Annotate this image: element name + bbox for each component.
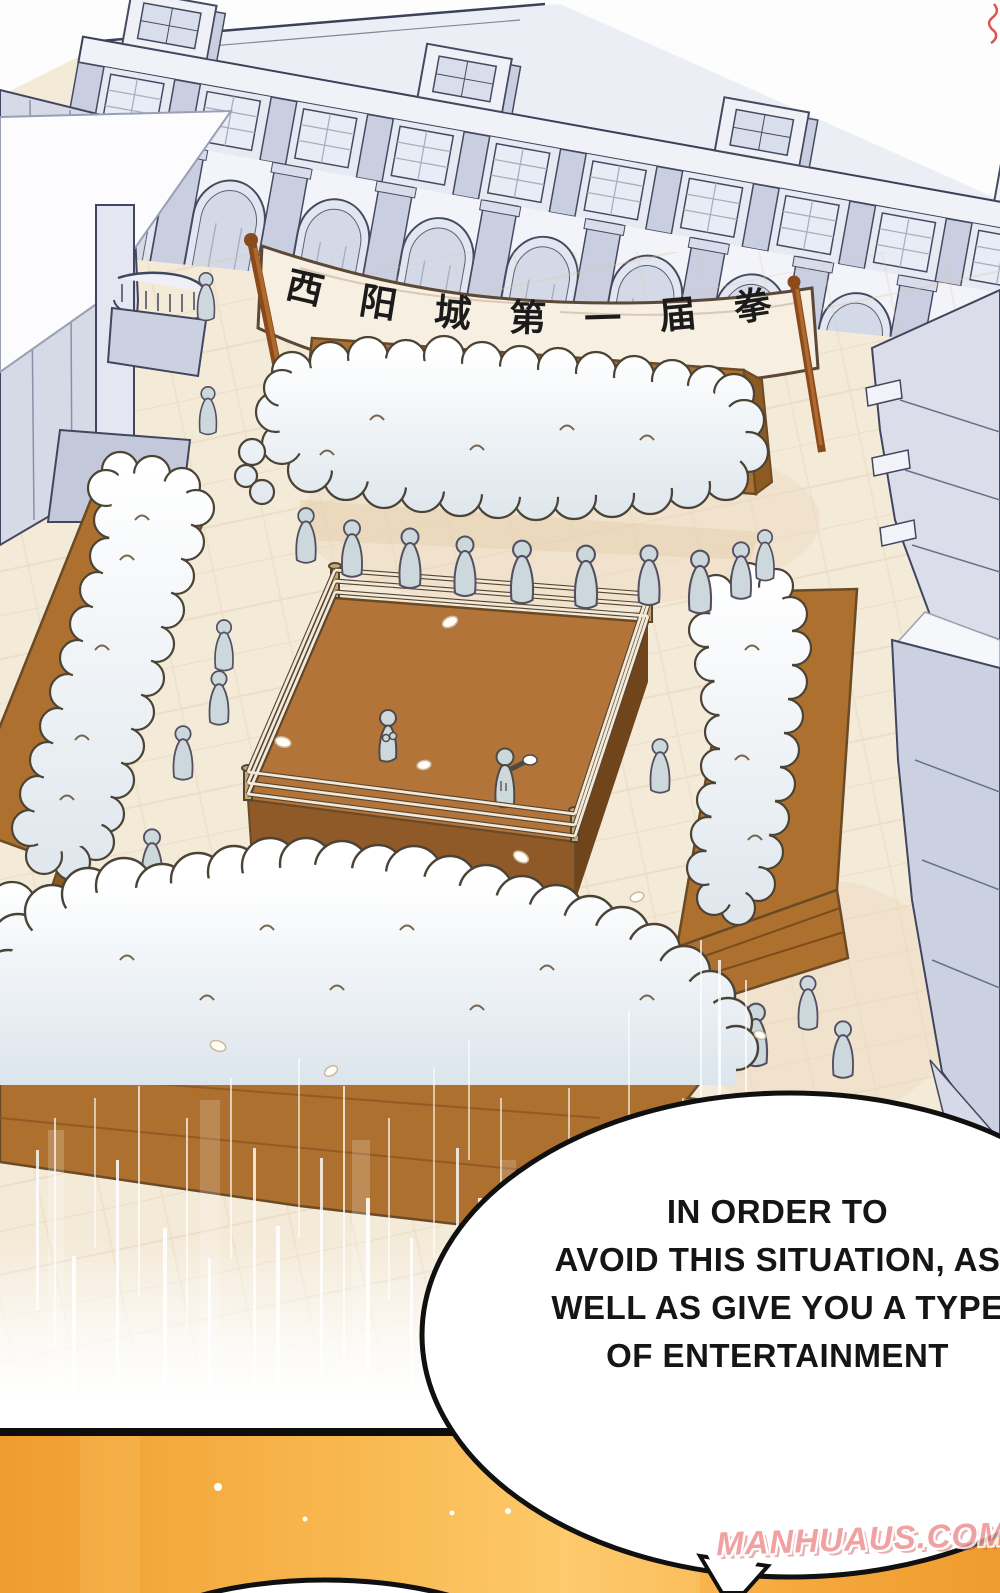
speech-line: OF ENTERTAINMENT [505,1332,1000,1380]
spectator-figure [296,508,315,563]
boxer-left [379,710,396,762]
comic-page: 西 阳 城 第 一 届 拳 击 比 赛 [0,0,1000,1593]
speech-line: WELL AS GIVE YOU A TYPE [505,1284,1000,1332]
speech-bubble-text: IN ORDER TO AVOID THIS SITUATION, AS WEL… [505,1188,1000,1380]
speech-line: IN ORDER TO [505,1188,1000,1236]
speech-line: AVOID THIS SITUATION, AS [505,1236,1000,1284]
